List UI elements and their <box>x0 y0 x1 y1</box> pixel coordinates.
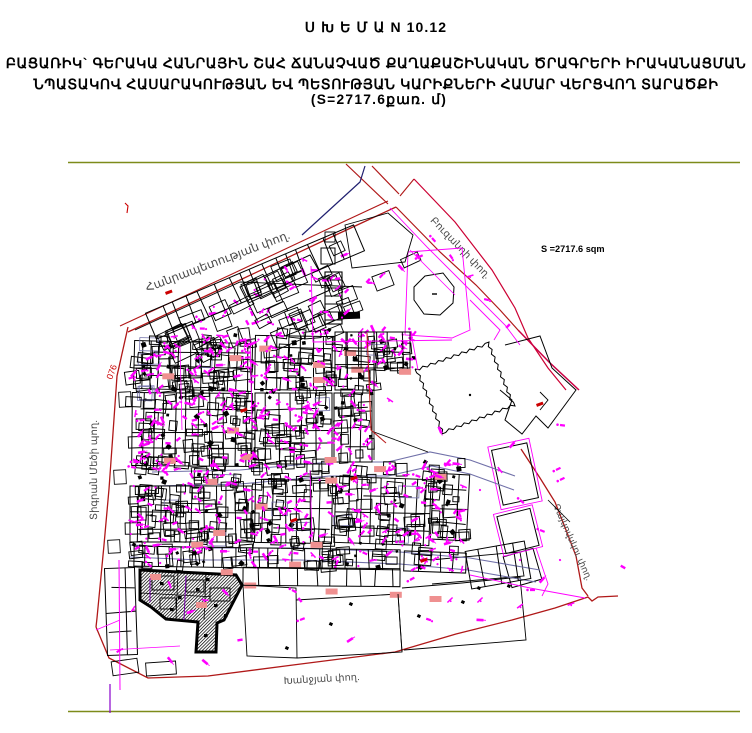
svg-text:Խանջյան փող.: Խանջյան փող. <box>283 672 360 687</box>
svg-text:Չայկովսկու փող.: Չայկովսկու փող. <box>551 502 594 582</box>
svg-text:S =2717.6 sqm: S =2717.6 sqm <box>541 244 605 254</box>
svg-text:Տիգրան Մեծի պող.: Տիգրան Մեծի պող. <box>89 420 100 520</box>
